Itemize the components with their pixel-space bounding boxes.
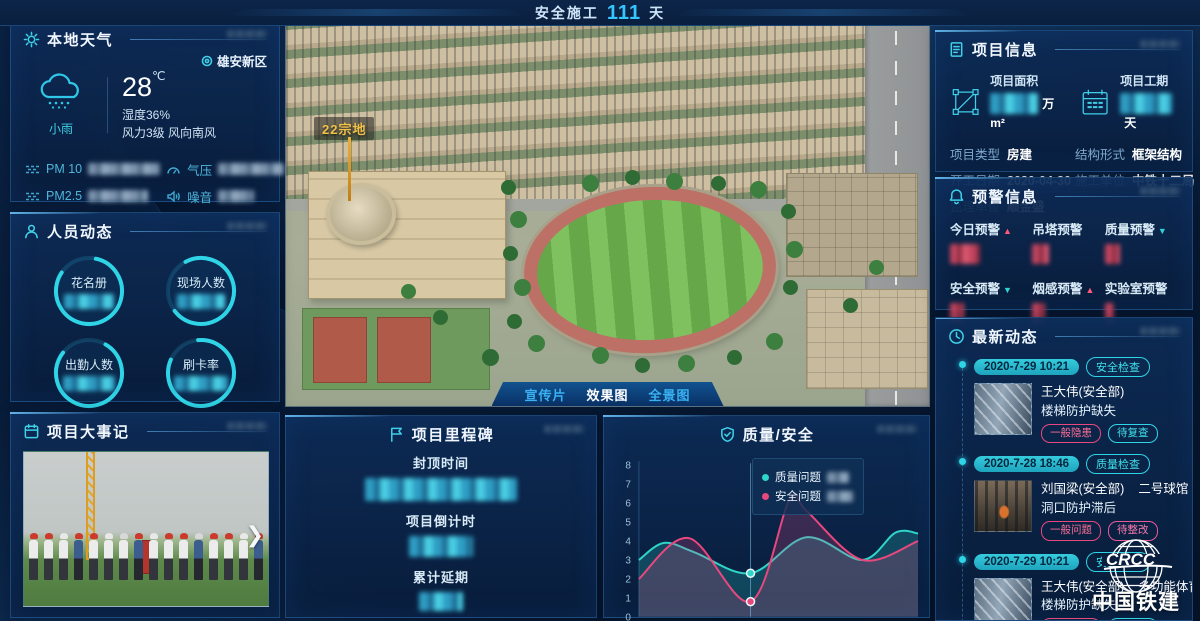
- tab-promo-video[interactable]: 宣传片: [524, 385, 566, 404]
- panel-header: 人员动态: [11, 213, 279, 246]
- header-deco-blur: [1140, 327, 1180, 335]
- personnel-panel: 人员动态 花名册 现场人数 出勤人数: [10, 212, 280, 402]
- update-date: 2020-7-29 10:21: [974, 554, 1079, 570]
- update-thumbnail[interactable]: [974, 480, 1032, 532]
- header-deco-blur: [227, 222, 267, 230]
- metric-label: PM 10: [46, 162, 82, 176]
- update-type-badge: 质量检查: [1086, 454, 1150, 474]
- blurred-value: [990, 93, 1038, 114]
- humidity: 湿度36%: [122, 107, 216, 124]
- today-warning: 今日预警▲: [950, 219, 1026, 264]
- blurred-value: [950, 244, 980, 264]
- parcel-label: 22宗地: [314, 117, 374, 140]
- noise-metric: 噪音: [166, 187, 284, 206]
- update-person: 刘国梁(安全部): [1041, 482, 1124, 496]
- tab-render-view[interactable]: 效果图: [586, 385, 628, 404]
- panel-title: 质量/安全: [743, 424, 815, 445]
- shield-check-icon: [719, 426, 736, 443]
- svg-text:4: 4: [625, 537, 631, 548]
- update-thumbnail[interactable]: [974, 578, 1032, 621]
- panel-title: 预警信息: [972, 186, 1038, 207]
- header-line: [1055, 196, 1180, 197]
- safe-construction-days: 111: [607, 3, 641, 23]
- chart-tooltip: 质量问题 安全问题: [752, 458, 864, 515]
- panel-header: 项目信息: [936, 31, 1192, 64]
- haze-icon: [25, 163, 40, 176]
- pm10-metric: PM 10: [25, 160, 160, 179]
- update-location: 二号球馆: [1138, 482, 1188, 496]
- calendar-icon: [1079, 83, 1111, 121]
- blurred-value: [365, 478, 517, 501]
- blurred-value: [1120, 93, 1172, 114]
- weather-condition: 小雨: [29, 73, 93, 137]
- wind: 风力3级 风向南风: [122, 125, 216, 142]
- crane-cable: [134, 451, 269, 524]
- crcc-logo: CRCC 中国铁建: [1075, 536, 1197, 620]
- blurred-value: [218, 190, 254, 202]
- noise-icon: [166, 190, 181, 203]
- field-project-type: 项目类型房建: [950, 144, 1071, 163]
- update-issue: 楼梯防护缺失: [1041, 402, 1158, 421]
- location-name: 雄安新区: [217, 51, 267, 70]
- panel-title: 本地天气: [47, 29, 113, 50]
- clock-icon: [948, 328, 965, 345]
- header-deco-blur: [227, 30, 267, 38]
- topping-time-item: 封顶时间: [365, 453, 517, 501]
- blurred-value: [827, 491, 853, 502]
- update-date: 2020-7-29 10:21: [974, 359, 1079, 375]
- blurred-value: [63, 376, 115, 391]
- header-deco-blur: [1140, 40, 1180, 48]
- duration-unit: 天: [1124, 116, 1136, 130]
- quality-series-dot: [762, 474, 769, 481]
- onsite-count-ring: 现场人数: [160, 254, 242, 328]
- panel-header: 项目大事记: [11, 413, 279, 446]
- pressure-icon: [166, 163, 181, 176]
- project-duration-stat: 项目工期 天: [1079, 72, 1178, 132]
- weather-details: 28℃ 湿度36% 风力3级 风向南风: [122, 68, 216, 142]
- person-icon: [23, 223, 40, 240]
- quality-series-label: 质量问题: [775, 469, 821, 485]
- pressure-metric: 气压: [166, 160, 284, 179]
- blurred-value: [409, 536, 473, 557]
- project-milestone-panel: 项目里程碑 封顶时间 项目倒计时 累计延期: [285, 415, 597, 618]
- bell-icon: [948, 188, 965, 205]
- blurred-value: [827, 472, 849, 483]
- crcc-name: 中国铁建: [1075, 586, 1197, 616]
- tab-panorama[interactable]: 全景图: [649, 385, 691, 404]
- calendar-note-icon: [23, 423, 40, 440]
- crane-warning: 吊塔预警: [1032, 219, 1098, 264]
- panel-title: 项目信息: [972, 39, 1038, 60]
- header-line: [1055, 336, 1180, 337]
- safe-construction-label: 安全施工: [535, 3, 599, 23]
- quality-warning: 质量预警▼: [1105, 219, 1178, 264]
- location-pin-icon: [201, 55, 213, 67]
- severity-tag: 一般隐患: [1041, 424, 1101, 444]
- safety-series-dot: [762, 493, 769, 500]
- update-date: 2020-7-28 18:46: [974, 456, 1079, 472]
- air-metrics: PM 10 气压 PM2.5 噪音: [11, 148, 279, 206]
- milestone-group-photo[interactable]: ❯: [23, 451, 269, 607]
- blurred-value: [419, 592, 463, 611]
- divider: [107, 77, 108, 133]
- header-line: [147, 431, 267, 432]
- project-events-panel: 项目大事记 ❯: [10, 412, 280, 618]
- parcel-pin-line: [348, 137, 351, 201]
- svg-text:0: 0: [625, 612, 631, 621]
- metric-label: 噪音: [187, 187, 212, 206]
- svg-text:3: 3: [625, 555, 631, 566]
- top-header-bar: 安全施工 111 天: [0, 0, 1200, 26]
- project-area-stat: 项目面积 万m²: [950, 72, 1055, 132]
- panel-header: 最新动态: [936, 318, 1192, 351]
- safety-series-label: 安全问题: [775, 488, 821, 504]
- crcc-wordmark: CRCC: [1102, 550, 1172, 569]
- pm25-metric: PM2.5: [25, 187, 160, 206]
- location-badge: 雄安新区: [201, 51, 267, 70]
- days-unit-label: 天: [649, 3, 665, 23]
- dome-building: [326, 183, 396, 245]
- panel-header: 项目里程碑: [286, 416, 596, 449]
- svg-text:5: 5: [625, 518, 631, 529]
- status-tag: 待复查: [1108, 424, 1158, 444]
- tooltip-safety-row: 安全问题: [762, 488, 854, 504]
- site-3d-view: 22宗地 宣传片 效果图 全景图: [285, 0, 930, 407]
- attendance-ring: 出勤人数: [48, 336, 130, 410]
- sun-icon: [23, 31, 40, 48]
- carousel-next-icon[interactable]: ❯: [246, 524, 264, 546]
- svg-text:7: 7: [625, 480, 631, 491]
- project-info-panel: 项目信息 项目面积 万m²: [935, 30, 1193, 172]
- temperature: 28℃: [122, 68, 216, 107]
- panel-title: 最新动态: [972, 326, 1038, 347]
- dashboard: 22宗地 宣传片 效果图 全景图 安全施工 111 天 本地天气 雄安新区: [0, 0, 1200, 621]
- view-mode-tabs: 宣传片 效果图 全景图: [492, 382, 724, 406]
- school-building-right: [786, 173, 918, 277]
- header-line: [130, 231, 267, 232]
- trend-up-icon: ▲: [1085, 285, 1094, 295]
- update-item[interactable]: 2020-7-29 10:21 安全检查 王大伟(安全部) 楼梯防护缺失 一般隐…: [974, 357, 1192, 443]
- panel-header: 质量/安全: [604, 416, 929, 449]
- trend-up-icon: ▲: [1003, 226, 1012, 236]
- warning-grid: 今日预警▲ 吊塔预警 质量预警▼ 安全预警▼ 烟感预警▲ 实验室预警: [936, 211, 1192, 323]
- metric-label: 气压: [187, 160, 212, 179]
- update-thumbnail[interactable]: [974, 383, 1032, 435]
- photo-people-row: [30, 540, 262, 580]
- update-person: 王大伟(安全部): [1041, 385, 1124, 399]
- panel-header: 预警信息: [936, 178, 1192, 211]
- header-line: [1055, 49, 1180, 50]
- roster-ring: 花名册: [48, 254, 130, 328]
- basketball-courts: [302, 308, 490, 390]
- svg-text:1: 1: [625, 593, 631, 604]
- svg-text:2: 2: [625, 574, 631, 585]
- swipe-rate-ring: 刷卡率: [160, 336, 242, 410]
- header-deco-blur: [544, 425, 584, 433]
- project-stats: 项目面积 万m² 项目工期 天: [936, 64, 1192, 134]
- panel-title: 人员动态: [47, 221, 113, 242]
- update-item[interactable]: 2020-7-28 18:46 质量检查 刘国梁(安全部)二号球馆 洞口防护滞后…: [974, 454, 1192, 540]
- countdown-item: 项目倒计时: [406, 511, 476, 557]
- metric-label: PM2.5: [46, 189, 82, 203]
- svg-text:8: 8: [625, 461, 631, 472]
- header-line: [130, 39, 267, 40]
- blurred-value: [218, 163, 284, 175]
- svg-text:6: 6: [625, 499, 631, 510]
- haze-icon: [25, 190, 40, 203]
- blurred-value: [88, 190, 148, 202]
- quality-safety-panel: 质量/安全 01234567810-0610-0710-0810-0910-10…: [603, 415, 930, 618]
- school-building-right-lower: [806, 289, 928, 389]
- document-icon: [948, 41, 965, 58]
- header-deco-blur: [877, 425, 917, 433]
- crane-cable: [23, 451, 134, 522]
- header-deco-blur: [227, 422, 267, 430]
- blurred-value: [64, 294, 114, 309]
- field-structure: 结构形式框架结构: [1075, 144, 1195, 163]
- flag-icon: [388, 426, 405, 443]
- personnel-rings: 花名册 现场人数 出勤人数 刷卡率: [11, 246, 279, 410]
- blurred-value: [177, 294, 225, 309]
- condition-label: 小雨: [29, 120, 93, 137]
- delay-item: 累计延期: [413, 567, 469, 611]
- area-icon: [950, 83, 981, 121]
- panel-title: 项目里程碑: [412, 424, 495, 445]
- update-issue: 洞口防护滞后: [1041, 499, 1188, 518]
- local-weather-panel: 本地天气 雄安新区 小雨 28℃ 湿度36% 风力3级 风向南风: [10, 20, 280, 202]
- blurred-value: [1032, 244, 1049, 264]
- tooltip-quality-row: 质量问题: [762, 469, 854, 485]
- trend-down-icon: ▼: [1158, 226, 1167, 236]
- update-type-badge: 安全检查: [1086, 357, 1150, 377]
- blurred-value: [1105, 244, 1120, 264]
- parcel-pin: 22宗地: [314, 117, 374, 140]
- header-deco-blur: [1140, 187, 1180, 195]
- milestone-items: 封顶时间 项目倒计时 累计延期: [286, 449, 596, 617]
- blurred-value: [88, 163, 160, 175]
- panel-title: 项目大事记: [47, 421, 130, 442]
- trend-down-icon: ▼: [1003, 285, 1012, 295]
- blurred-value: [174, 376, 228, 391]
- warnings-panel: 预警信息 今日预警▲ 吊塔预警 质量预警▼ 安全预警▼ 烟感预警▲: [935, 177, 1193, 310]
- rain-cloud-icon: [34, 73, 88, 113]
